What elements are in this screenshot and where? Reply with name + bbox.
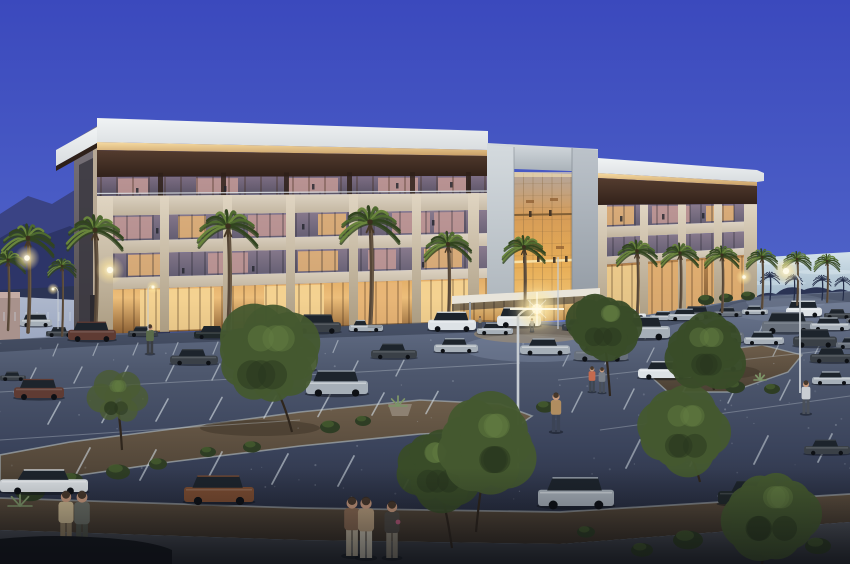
car-wheel (352, 389, 359, 396)
person-legs (552, 414, 556, 432)
car-highlight (814, 378, 850, 380)
asphalt-glint (297, 427, 299, 429)
office-worker-silhouette (156, 228, 159, 234)
car-wheel (842, 381, 846, 385)
person-shadow (587, 391, 596, 394)
person-legs (593, 380, 595, 392)
shrub-highlight (766, 384, 776, 390)
car-cabin (74, 322, 109, 330)
lit-window (298, 251, 338, 272)
palm-trunk (827, 263, 828, 303)
car-wheel (51, 394, 57, 400)
car-wheel (44, 323, 48, 327)
car-highlight (744, 310, 766, 312)
asphalt-glint (334, 365, 336, 367)
car-highlight (430, 321, 474, 323)
office-worker-silhouette (182, 268, 185, 274)
tree-canopy-light (114, 380, 126, 392)
person-torso (146, 330, 154, 341)
brown-fin (158, 173, 163, 196)
palm-crown-core (367, 219, 373, 225)
office-worker-silhouette (620, 216, 623, 222)
car-highlight (436, 345, 476, 347)
asphalt-glint (794, 464, 795, 465)
office-worker-silhouette (396, 183, 399, 189)
car-wheel (378, 355, 382, 359)
car-cabin (751, 332, 773, 337)
asphalt-glint (165, 352, 167, 354)
asphalt-glint (113, 359, 114, 360)
palm-crown-core (720, 253, 723, 256)
car-highlight (788, 309, 820, 311)
lamp-bulb (52, 288, 55, 291)
car-wheel (839, 451, 843, 455)
atrium-person-silhouette (553, 257, 556, 263)
lit-window (352, 282, 402, 325)
tree-canopy-shade (594, 327, 613, 346)
car-highlight (522, 347, 568, 349)
asphalt-glint (746, 416, 748, 418)
car-highlight (70, 331, 114, 333)
car-wheel (177, 361, 182, 366)
car-highlight (812, 355, 850, 357)
palm-trunk (62, 268, 63, 336)
palm-crown-core (821, 279, 823, 281)
brown-fin (466, 172, 471, 193)
car-wheel (812, 313, 817, 318)
landscape-uplight (24, 255, 30, 261)
car-wheel (558, 351, 563, 356)
palm-crown-core (446, 242, 450, 246)
person-torso (589, 371, 596, 381)
car-cabin (812, 440, 838, 446)
car-wheel (774, 341, 778, 345)
car-highlight (22, 320, 50, 322)
asphalt-glint (261, 467, 262, 468)
brown-fin (284, 173, 289, 195)
palm-trunk (722, 257, 723, 312)
car-highlight (826, 314, 850, 316)
office-worker-silhouette (312, 184, 315, 190)
asphalt-glint (753, 423, 754, 424)
asphalt-glint (844, 463, 846, 465)
office-worker-silhouette (432, 220, 435, 226)
car-wheel (467, 349, 471, 353)
asphalt-glint (638, 414, 639, 415)
office-worker-silhouette (702, 213, 705, 219)
car-highlight (172, 357, 216, 359)
office-worker-silhouette (302, 224, 305, 230)
tree-canopy-light (484, 414, 508, 438)
palm-crown-core (26, 236, 31, 241)
asphalt-glint (356, 445, 358, 447)
person-legs (481, 323, 482, 328)
asphalt-glint (431, 417, 432, 418)
shrub-highlight (202, 447, 212, 453)
lamp-bulb (783, 268, 789, 274)
person-legs (478, 323, 479, 328)
asphalt-glint (78, 414, 80, 416)
shrub-highlight (700, 295, 710, 301)
car-cabin (201, 327, 222, 332)
person-shadow (145, 353, 156, 356)
person-legs (147, 341, 150, 355)
car-highlight (838, 343, 850, 345)
tree-canopy-shade (114, 401, 128, 415)
car-highlight (806, 447, 848, 449)
person-hair (479, 316, 481, 318)
person-legs (151, 341, 154, 355)
asphalt-glint (731, 405, 733, 407)
palm-crown-core (769, 276, 771, 278)
car-cabin (818, 348, 844, 354)
car-highlight (351, 326, 381, 328)
person-torso (478, 318, 481, 322)
asphalt-glint (0, 343, 1, 344)
car-wheel (826, 342, 831, 347)
tree-canopy-light (262, 325, 288, 351)
asphalt-glint (724, 408, 726, 410)
palm-trunk (843, 282, 844, 300)
car-highlight (479, 329, 511, 331)
scene-svg (0, 0, 850, 564)
lit-window (196, 178, 238, 194)
car-cabin (442, 339, 467, 345)
car-wheel (734, 313, 738, 317)
car-highlight (764, 322, 812, 324)
asphalt-glint (417, 421, 418, 422)
person-hair (600, 367, 604, 371)
office-worker-silhouette (662, 214, 665, 220)
palm-crown-core (6, 258, 9, 261)
car-wheel (750, 341, 754, 345)
stone-pier (412, 194, 421, 325)
palm-trunk (762, 259, 763, 308)
shrub-highlight (742, 291, 750, 296)
asphalt-glint (643, 393, 645, 395)
lamp-bulb (152, 286, 155, 289)
car-wheel (104, 336, 110, 342)
asphalt-glint (803, 359, 804, 360)
person-legs (599, 381, 601, 393)
person-legs (807, 399, 810, 414)
brown-fin (347, 172, 352, 194)
office-worker-silhouette (450, 182, 453, 188)
person-shadow (549, 430, 563, 434)
tree-canopy-light (683, 405, 705, 427)
car-wheel (503, 322, 509, 328)
stone-pier (160, 196, 169, 333)
car-highlight (812, 324, 848, 326)
car-wheel (206, 361, 211, 366)
landscape-uplight (742, 275, 746, 279)
atrium-furniture (556, 246, 564, 249)
palm-trunk (822, 281, 823, 300)
asphalt-glint (731, 443, 733, 445)
atrium-person-silhouette (549, 210, 552, 216)
palm-crown-core (522, 245, 526, 249)
car-highlight (746, 338, 782, 340)
asphalt-glint (401, 384, 402, 385)
car-wheel (845, 359, 849, 363)
car-wheel (655, 334, 662, 341)
asphalt-glint (559, 384, 561, 386)
car-wheel (582, 356, 587, 361)
car-wheel (811, 451, 815, 455)
asphalt-glint (593, 457, 595, 459)
car-wheel (646, 374, 651, 379)
tree-canopy-shade (237, 360, 266, 389)
tree-canopy-light (603, 305, 620, 322)
asphalt-glint (808, 427, 810, 429)
palm-crown-core (796, 258, 799, 261)
asphalt-glint (773, 363, 774, 364)
car-highlight (16, 389, 62, 391)
atrium-floor-slab (514, 214, 572, 215)
car-wheel (840, 327, 844, 331)
car-cabin (789, 301, 817, 308)
person-hair (590, 366, 594, 370)
palm-crown-core (826, 260, 828, 262)
office-worker-silhouette (224, 186, 227, 192)
car-cabin (529, 339, 557, 346)
palm-crown-core (61, 265, 64, 268)
car-cabin (20, 380, 56, 388)
palm-trunk (794, 280, 795, 300)
car-cabin (434, 312, 469, 320)
car-highlight (716, 312, 740, 314)
person-hair (148, 324, 152, 328)
car-wheel (200, 335, 204, 339)
car-wheel (435, 326, 441, 332)
asphalt-glint (330, 409, 332, 411)
asphalt-glint (522, 343, 524, 345)
person-torso (551, 400, 561, 415)
vignette (0, 468, 850, 564)
shrub-highlight (538, 401, 549, 407)
car-cabin (817, 318, 839, 323)
asphalt-glint (11, 464, 13, 466)
shrub-highlight (357, 416, 367, 422)
palm-crown-core (225, 223, 231, 229)
person-legs (603, 381, 605, 393)
person-shadow (597, 392, 606, 395)
asphalt-glint (634, 463, 635, 464)
asphalt-glint (586, 385, 588, 387)
shrub-highlight (151, 458, 162, 464)
car-wheel (504, 331, 508, 335)
brown-fin (221, 173, 226, 195)
office-worker-silhouette (252, 266, 255, 272)
asphalt-glint (452, 380, 454, 382)
landscape-uplight (107, 267, 113, 273)
brown-fin (410, 172, 415, 193)
atrium-furniture (550, 198, 558, 201)
car-cabin (674, 309, 694, 314)
palm-crown-core (761, 256, 764, 259)
person-shadow (800, 412, 812, 415)
person-legs (802, 399, 805, 414)
tree-canopy-shade (683, 434, 707, 458)
asphalt-glint (325, 353, 326, 354)
car-wheel (528, 351, 533, 356)
car-wheel (441, 349, 445, 353)
car-wheel (482, 331, 486, 335)
car-highlight (308, 383, 366, 385)
stone-pier (640, 205, 648, 322)
asphalt-glint (789, 402, 790, 403)
lit-window (128, 254, 162, 276)
atrium-top-glow (514, 172, 572, 177)
palm-trunk (770, 278, 771, 300)
asphalt-glint (617, 378, 618, 379)
lit-window (606, 206, 634, 225)
person-torso (802, 387, 811, 400)
palm-crown-core (635, 249, 639, 253)
palm-crown-core (678, 251, 681, 254)
car-wheel (75, 336, 81, 342)
person-torso (599, 372, 606, 382)
car-cabin (798, 330, 830, 337)
person-legs (557, 414, 561, 432)
car-cabin (379, 344, 405, 350)
car-wheel (818, 381, 822, 385)
car-wheel (329, 328, 334, 333)
car-wheel (132, 333, 136, 337)
car-wheel (354, 328, 358, 332)
car-cabin (179, 350, 206, 356)
atrium-furniture (526, 200, 534, 203)
atrium-person-silhouette (529, 211, 532, 217)
person-legs (589, 380, 591, 392)
car-wheel (50, 333, 54, 337)
asphalt-glint (314, 464, 316, 466)
palm-trunk (8, 262, 9, 330)
palm-crown-core (842, 280, 844, 282)
stone-pier (286, 195, 295, 329)
asphalt-glint (757, 383, 759, 385)
car-wheel (464, 326, 470, 332)
asphalt-glint (840, 418, 842, 420)
car-highlight (2, 376, 24, 378)
atrium-person-silhouette (565, 256, 568, 262)
rendering-canvas: Dusk architectural rendering of a four-s… (0, 0, 850, 564)
asphalt-glint (835, 424, 837, 426)
car-wheel (315, 389, 322, 396)
person-hair (804, 380, 809, 385)
asphalt-glint (40, 347, 42, 349)
car-wheel (673, 317, 677, 321)
car-wheel (817, 359, 821, 363)
asphalt-glint (814, 390, 816, 392)
office-worker-silhouette (422, 262, 425, 268)
car-cabin (313, 371, 358, 381)
shrub-highlight (245, 441, 256, 447)
car-wheel (21, 394, 27, 400)
car-wheel (406, 355, 410, 359)
car-highlight (795, 338, 835, 340)
car-highlight (373, 351, 415, 353)
asphalt-glint (430, 339, 432, 341)
palm-crown-core (92, 227, 97, 232)
tree-canopy-shade (700, 354, 722, 376)
car-wheel (374, 328, 378, 332)
shrub-highlight (322, 421, 334, 428)
person-hair (553, 392, 559, 398)
car-cabin (819, 372, 841, 377)
asphalt-glint (720, 400, 722, 402)
tree-canopy-light (689, 327, 709, 347)
asphalt-glint (116, 428, 118, 430)
